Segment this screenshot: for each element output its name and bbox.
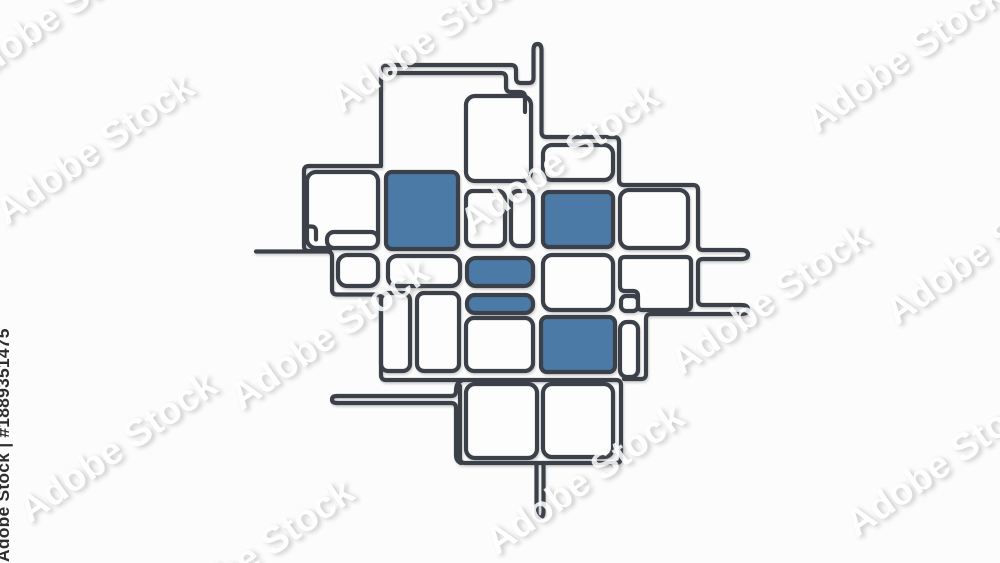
line-left-stub-lower <box>337 403 461 463</box>
blue-row3 <box>541 317 615 372</box>
stock-id-watermark: Adobe Stock | #1889351475 <box>0 328 14 562</box>
rect-bottom-left-square <box>466 384 537 458</box>
rect-right-row1 <box>620 190 688 248</box>
blue-bar-2 <box>467 295 533 313</box>
rect-mid-wide-small <box>388 256 460 286</box>
rect-topright-small <box>543 145 613 180</box>
blue-right-row1 <box>543 192 613 247</box>
rect-col1-tall <box>381 293 410 371</box>
rect-col2-tall <box>417 293 459 371</box>
line-left-stub-upper <box>337 381 461 396</box>
artwork-group <box>256 44 748 518</box>
blue-bar-1 <box>467 258 533 286</box>
rect-right-row2-white <box>543 255 613 310</box>
rect-center-row3 <box>466 318 533 371</box>
blue-big-square <box>386 172 458 249</box>
line-bottom-dangler <box>537 463 544 518</box>
rect-center-pair-right <box>511 191 533 246</box>
rect-narrow-row3 <box>620 322 638 377</box>
rect-tiny-square <box>621 296 638 311</box>
rect-center-pair-left <box>466 191 505 246</box>
rect-bottom-right-square <box>543 384 613 457</box>
rect-center-tall-top <box>466 96 531 181</box>
rect-left-small <box>338 255 378 286</box>
rect-top-left-inset-bar <box>327 232 378 248</box>
stock-image-canvas: Adobe StockAdobe StockAdobe StockAdobe S… <box>0 0 1000 563</box>
line-art-illustration <box>0 0 1000 563</box>
